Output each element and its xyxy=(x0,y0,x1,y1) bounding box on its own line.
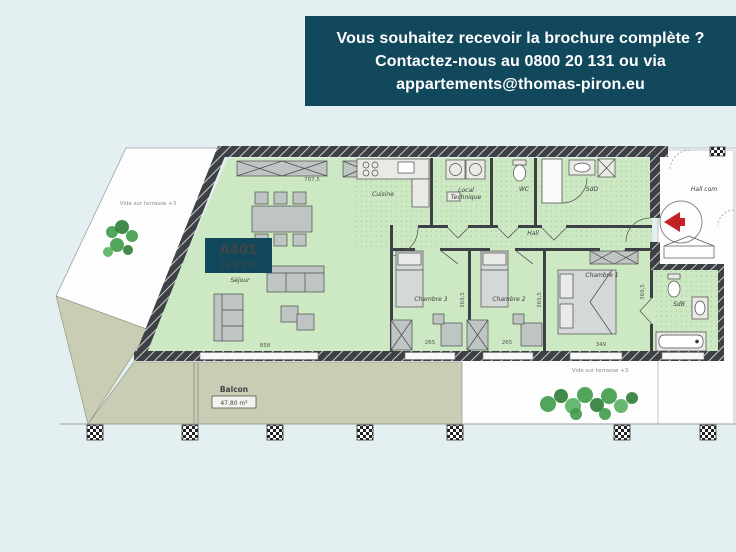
void-label-left: Vide sur terrasse +3 xyxy=(120,201,177,207)
dim-top-width: 707,5 xyxy=(304,177,320,183)
dim-chambre3-width: 265 xyxy=(425,340,436,346)
structural-columns xyxy=(87,425,716,440)
room-label-chambre1: Chambre 1 xyxy=(585,272,618,279)
floor-plan: A401 129 m² Séjour Cuisine Local Techniq… xyxy=(0,130,736,552)
room-label-wc: WC xyxy=(519,186,530,193)
banner-line-question: Vous souhaitez recevoir la brochure comp… xyxy=(337,27,705,50)
dim-chambre2-width: 265 xyxy=(502,340,513,346)
room-label-chambre2: Chambre 2 xyxy=(492,296,525,303)
shaft-marker xyxy=(710,147,725,156)
dim-sejour-width: 858 xyxy=(260,343,271,349)
dim-chambre1-width: 349 xyxy=(596,342,607,348)
banner-line-email: appartements@thomas-piron.eu xyxy=(396,73,645,96)
sdd-fixtures xyxy=(569,159,615,177)
banner-line-phone: Contactez-nous au 0800 20 131 ou via xyxy=(375,50,666,73)
room-label-hall: Hall xyxy=(527,230,539,237)
dim-chambre1-depth: 369,5 xyxy=(640,284,646,300)
wc-fixtures xyxy=(513,160,526,181)
contact-banner: Vous souhaitez recevoir la brochure comp… xyxy=(305,16,736,106)
room-label-cuisine: Cuisine xyxy=(372,191,394,198)
room-label-local-technique: Technique xyxy=(451,194,482,201)
unit-area: 129 m² xyxy=(219,258,259,271)
room-label-sdb: SdB xyxy=(673,301,685,308)
balcony-label: Balcon xyxy=(220,385,248,394)
unit-number: A401 xyxy=(220,243,257,258)
balcony-area-value: 47.80 m² xyxy=(220,400,248,407)
entrance-arrow-icon xyxy=(680,218,685,226)
room-label-hall-commun: Hall com xyxy=(691,186,717,193)
dim-chambre3-depth: 369,5 xyxy=(460,292,466,308)
room-label-sdd: SdD xyxy=(586,186,599,193)
dim-chambre2-depth: 369,5 xyxy=(537,292,543,308)
balcony-area xyxy=(88,362,462,424)
room-label-local-technique: Local xyxy=(458,187,474,194)
void-label-right: Vide sur terrasse +3 xyxy=(572,368,629,374)
door-leaf xyxy=(542,159,562,203)
room-label-chambre3: Chambre 3 xyxy=(414,296,447,303)
entrance-threshold xyxy=(664,246,714,258)
brochure-page: Vous souhaitez recevoir la brochure comp… xyxy=(0,0,736,552)
room-label-sejour: Séjour xyxy=(230,277,250,284)
